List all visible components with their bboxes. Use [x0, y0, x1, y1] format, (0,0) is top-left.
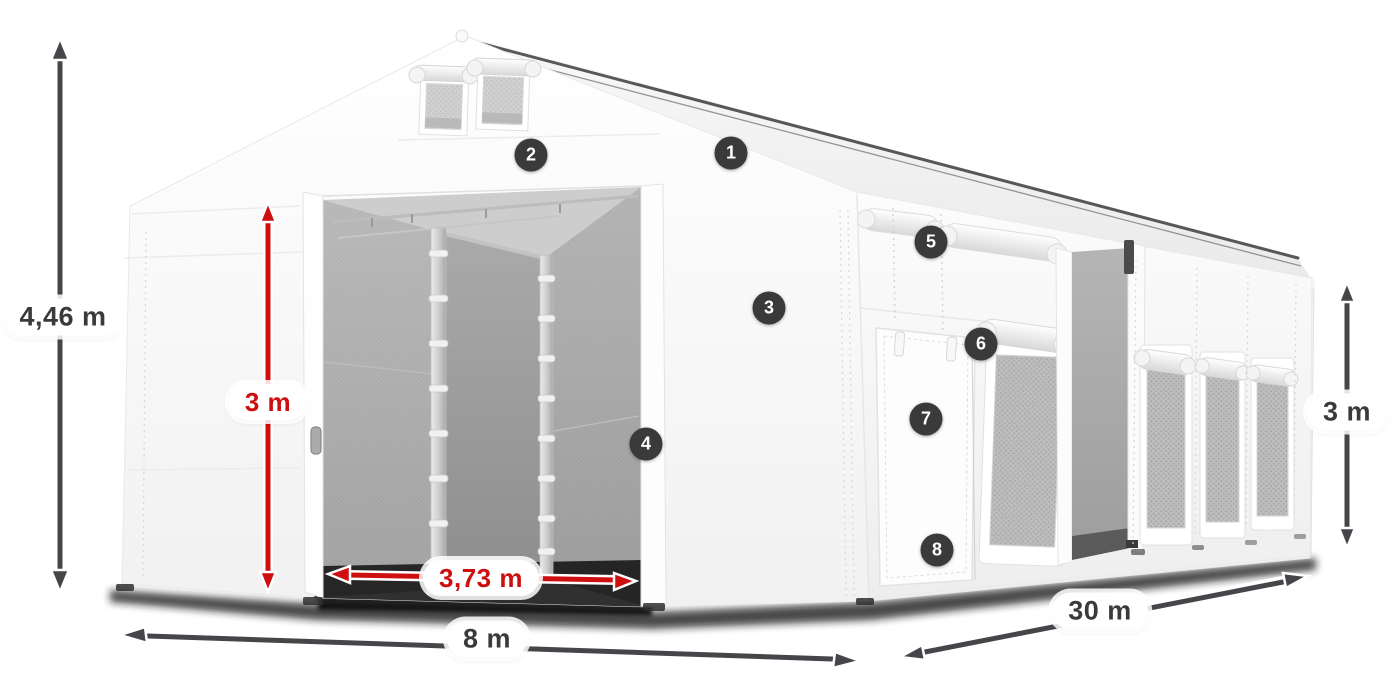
interior-corridor	[435, 231, 545, 590]
marker-2: 2	[515, 139, 548, 172]
dimension-label-gable-width: 8 m	[447, 621, 527, 658]
marker-4: 4	[630, 428, 663, 461]
entrance-opening	[303, 184, 666, 607]
tent-diagram: 4,46 m 3 m 3,73 m 8 m 30 m 3 m 1 2 3 4 5…	[0, 0, 1400, 700]
entrance-frame-left	[303, 192, 323, 598]
marker-8: 8	[921, 534, 954, 567]
marker-5: 5	[915, 226, 948, 259]
entrance-frame-right	[641, 184, 666, 606]
dimension-label-side-height: 3 m	[1307, 394, 1387, 431]
marker-7: 7	[910, 403, 943, 436]
marker-1: 1	[715, 137, 748, 170]
dimension-label-entrance-width: 3,73 m	[423, 560, 539, 596]
tent-illustration	[0, 0, 1400, 700]
dimension-label-total-height: 4,46 m	[3, 299, 122, 336]
dimension-label-length: 30 m	[1052, 593, 1148, 630]
door-handle	[311, 427, 321, 454]
marker-6: 6	[965, 328, 998, 361]
dimension-label-entrance-height: 3 m	[229, 384, 307, 420]
marker-3: 3	[753, 292, 786, 325]
open-side-section	[1056, 240, 1145, 565]
